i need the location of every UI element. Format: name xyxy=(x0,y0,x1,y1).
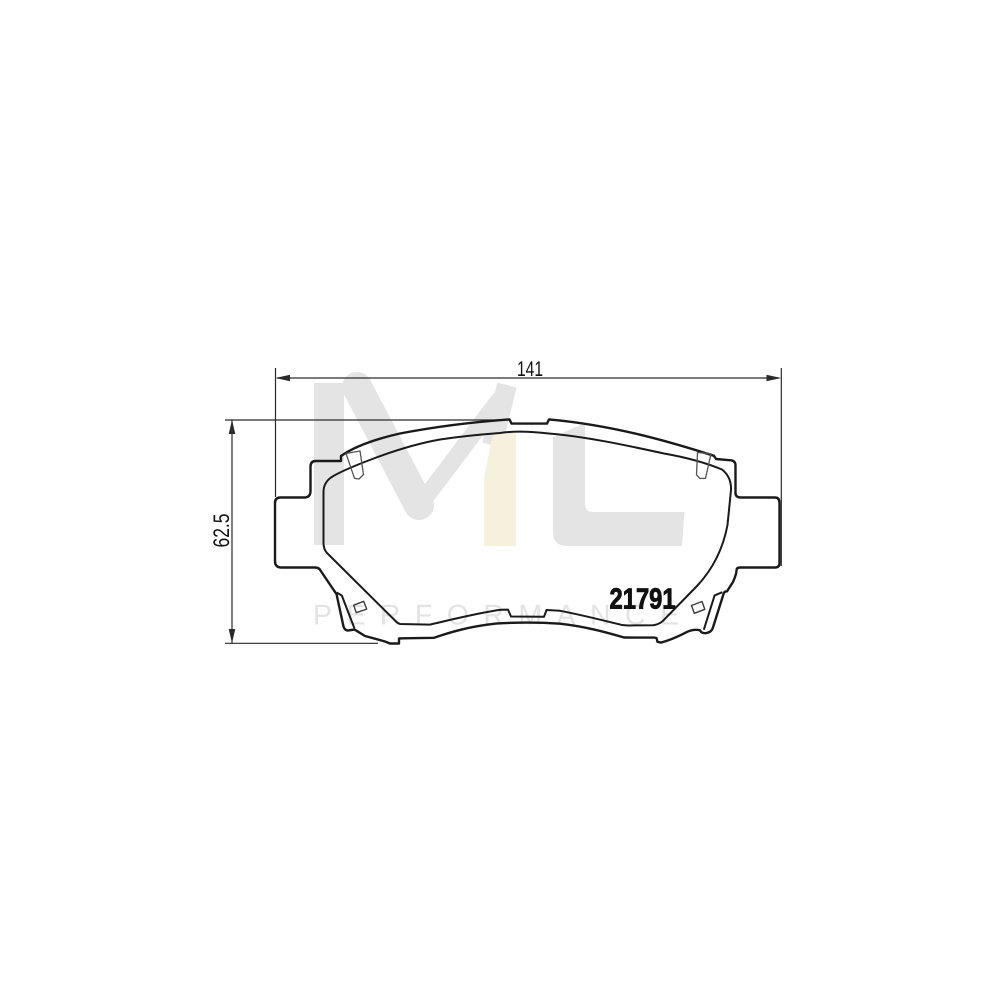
svg-text:21791: 21791 xyxy=(610,584,676,616)
svg-text:141: 141 xyxy=(517,357,543,381)
svg-text:62.5: 62.5 xyxy=(209,514,234,548)
